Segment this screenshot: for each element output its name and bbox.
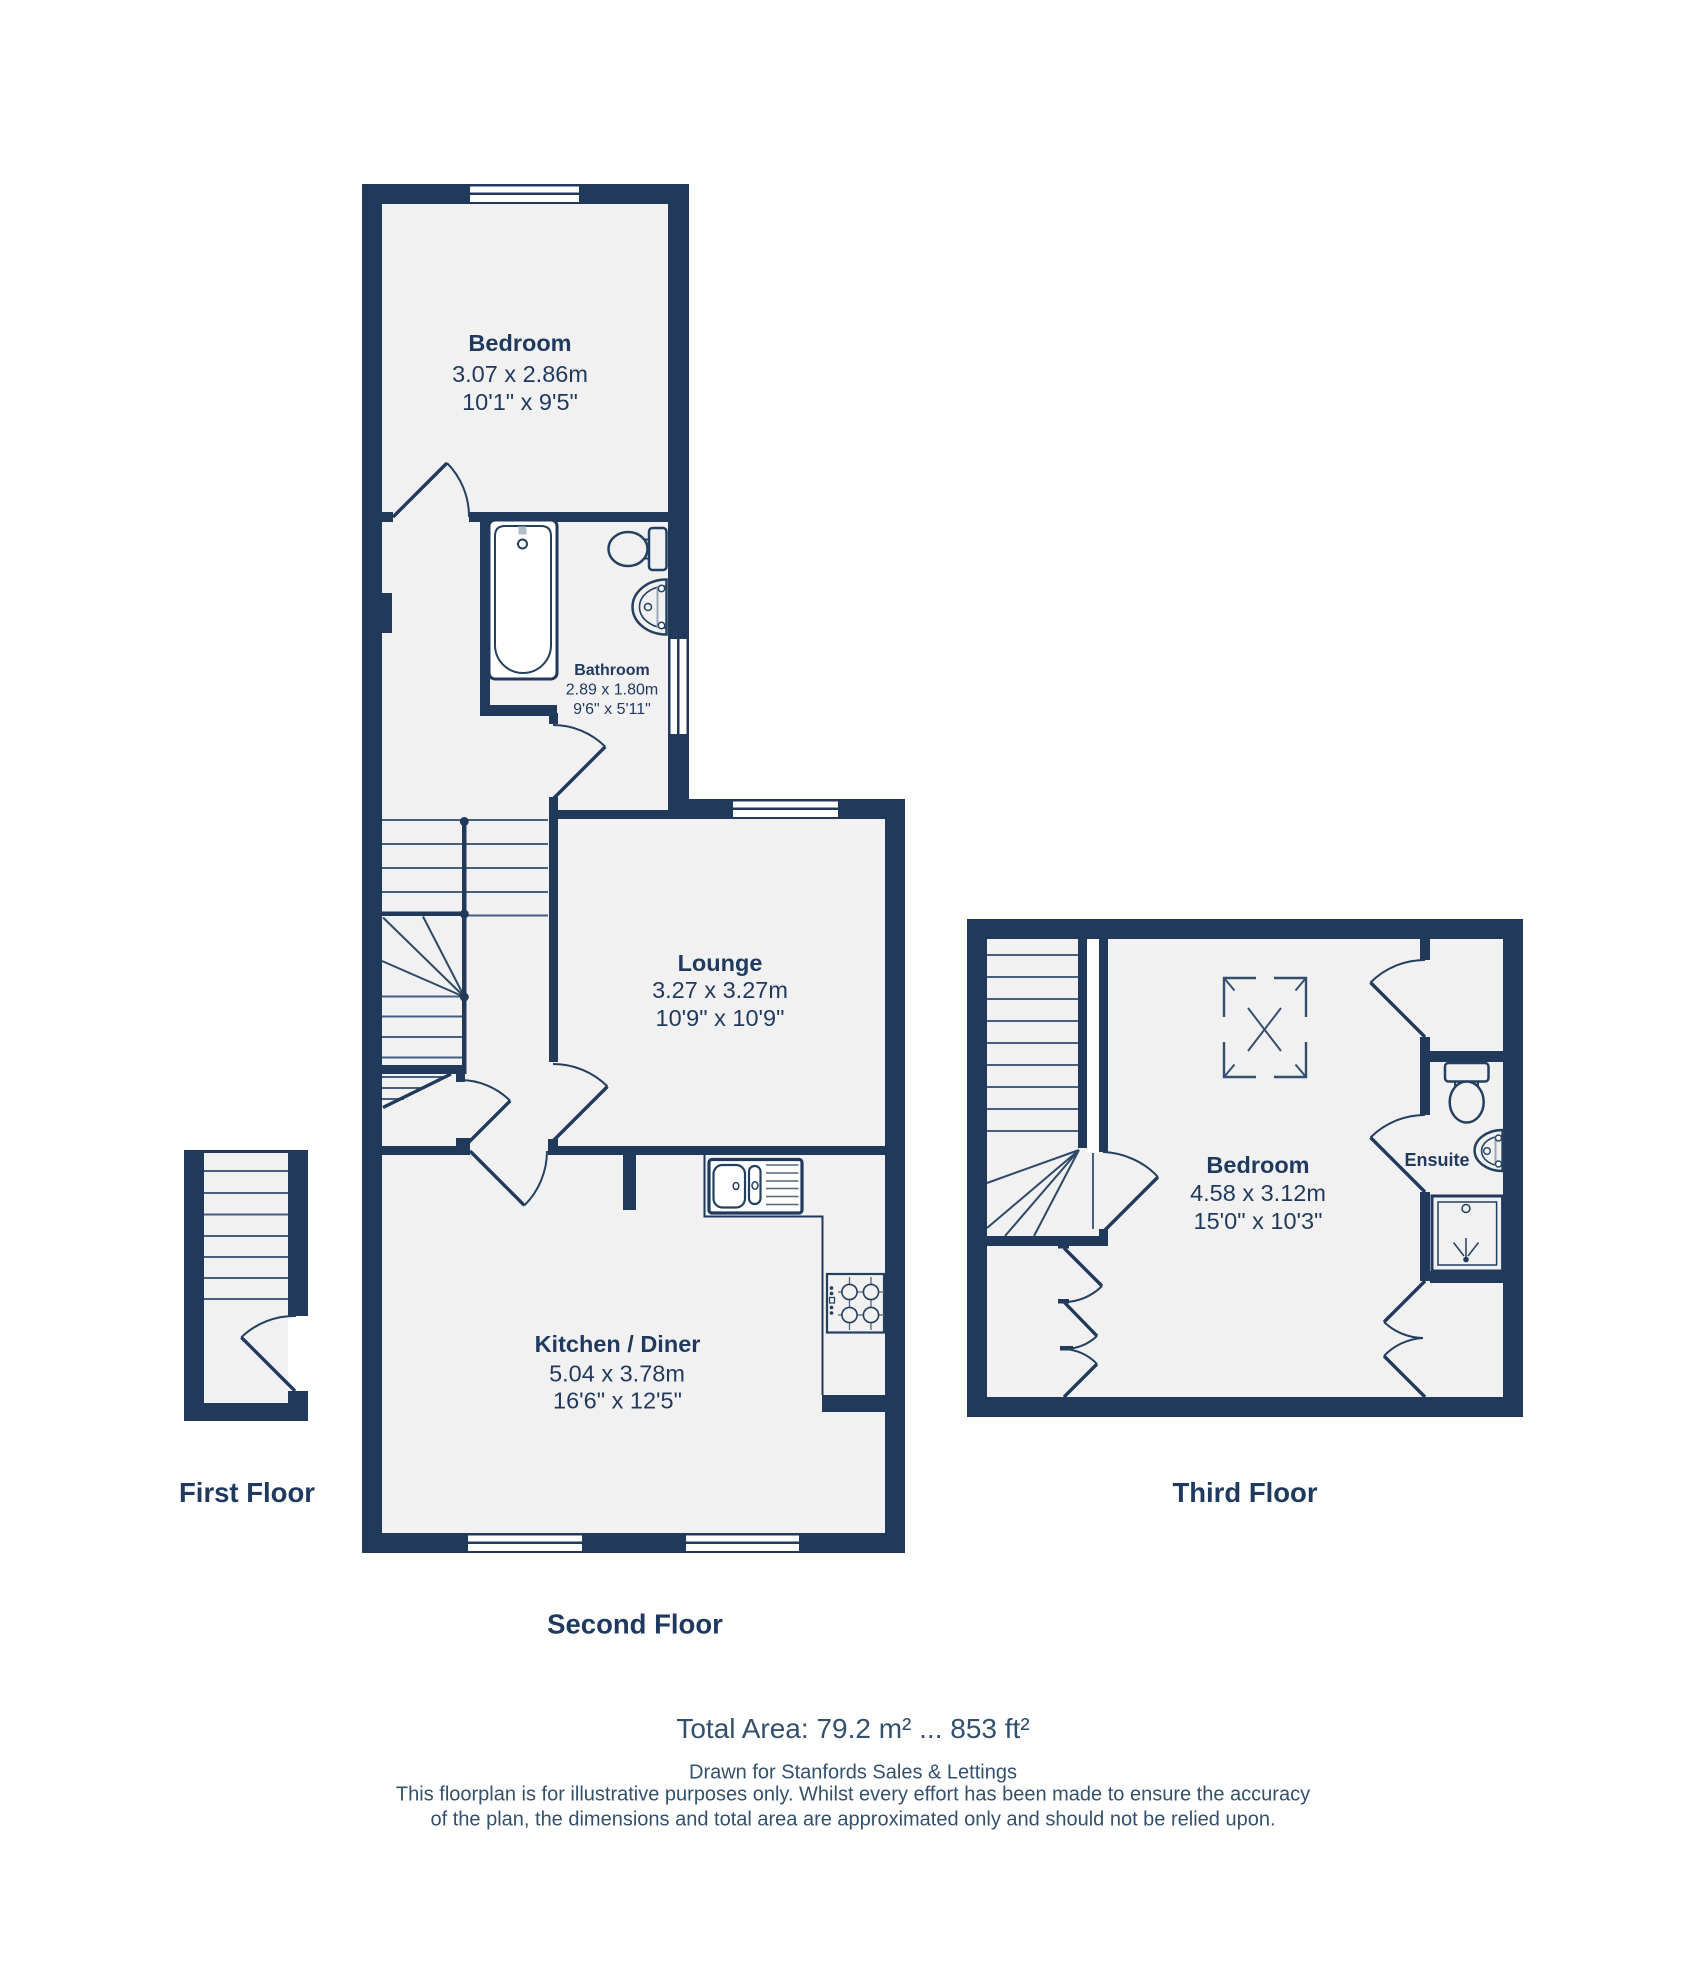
svg-text:Drawn for Stanfords Sales & Le: Drawn for Stanfords Sales & Lettings (689, 1762, 1017, 1784)
svg-text:Ensuite: Ensuite (1404, 1150, 1469, 1170)
svg-text:First Floor: First Floor (179, 1477, 315, 1508)
svg-text:Bedroom: Bedroom (468, 330, 571, 356)
svg-text:Total Area: 79.2 m² ... 853 ft: Total Area: 79.2 m² ... 853 ft² (676, 1713, 1029, 1744)
svg-text:3.07 x 2.86m: 3.07 x 2.86m (452, 361, 588, 387)
svg-text:5.04 x 3.78m: 5.04 x 3.78m (549, 1361, 685, 1387)
svg-text:Bedroom: Bedroom (1206, 1152, 1309, 1178)
svg-text:4.58 x 3.12m: 4.58 x 3.12m (1190, 1180, 1326, 1206)
svg-text:Kitchen / Diner: Kitchen / Diner (535, 1331, 701, 1357)
svg-text:9'6" x 5'11": 9'6" x 5'11" (573, 701, 651, 718)
svg-text:Third Floor: Third Floor (1172, 1477, 1317, 1508)
svg-text:10'9" x 10'9": 10'9" x 10'9" (656, 1005, 785, 1031)
svg-text:Second Floor: Second Floor (547, 1609, 723, 1640)
svg-text:16'6" x 12'5": 16'6" x 12'5" (553, 1388, 682, 1414)
svg-text:This floorplan is for illustra: This floorplan is for illustrative purpo… (396, 1784, 1310, 1806)
svg-text:Bathroom: Bathroom (574, 662, 650, 679)
svg-text:Lounge: Lounge (678, 950, 763, 976)
svg-text:10'1" x 9'5": 10'1" x 9'5" (462, 389, 578, 415)
svg-text:3.27 x 3.27m: 3.27 x 3.27m (652, 977, 788, 1003)
svg-text:15'0" x 10'3": 15'0" x 10'3" (1194, 1208, 1323, 1234)
svg-text:of the plan, the dimensions an: of the plan, the dimensions and total ar… (430, 1809, 1275, 1831)
svg-text:2.89 x 1.80m: 2.89 x 1.80m (566, 682, 659, 699)
